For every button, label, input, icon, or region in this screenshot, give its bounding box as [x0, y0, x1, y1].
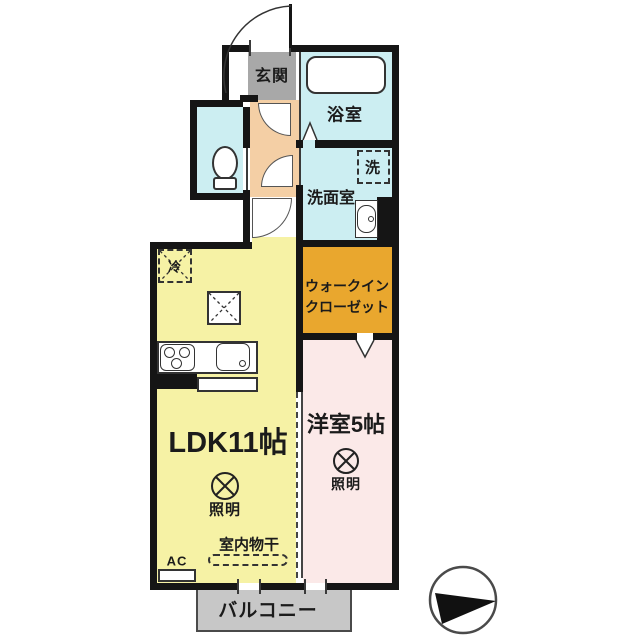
wall-hall-left-upper	[243, 107, 250, 148]
wall-central	[296, 185, 303, 392]
toilet-bowl	[212, 146, 238, 180]
window-tick-1	[237, 579, 239, 594]
wall-wic-bottom-stub	[373, 333, 392, 340]
partition-sliding-door	[296, 392, 303, 578]
vanity-faucet	[368, 216, 374, 222]
counter-return	[197, 377, 258, 392]
hall-bath-line	[299, 52, 301, 140]
kitchen-faucet	[239, 360, 246, 367]
window-tick-2	[259, 579, 261, 594]
counter-box	[207, 291, 241, 325]
washer-side-block	[377, 197, 392, 240]
entrance-door-leaf	[289, 4, 292, 48]
western-room-label: 洋室5帖	[307, 407, 385, 439]
bathtub	[306, 56, 386, 94]
bathroom-label: 浴室	[327, 101, 363, 126]
window-tick-4	[325, 579, 327, 594]
wall-toilet-left	[190, 100, 197, 200]
ac-unit	[158, 569, 196, 582]
western-room-floor	[303, 340, 392, 583]
entrance-tick-left	[249, 40, 251, 56]
ldk-door-swing	[252, 198, 292, 238]
refrigerator-label: 冷	[168, 257, 182, 276]
wall-ldk-top	[150, 242, 252, 249]
wall-ldk-left	[150, 242, 157, 590]
kitchen-wall-stub	[150, 374, 197, 389]
floor-plan: 玄関 浴室 洗 洗面室 ウォークイン クローゼット 冷 LDK11帖 照明 室内…	[0, 0, 640, 640]
wall-toilet-bottom	[190, 193, 250, 200]
wic-label: ウォークイン クローゼット	[305, 276, 389, 318]
stove-burner-3	[171, 358, 182, 369]
wall-genkan-hall-stub	[240, 95, 258, 102]
wall-wic-bottom	[296, 333, 357, 340]
bath-door-opening	[303, 140, 315, 148]
kitchen-sink	[216, 343, 250, 371]
western-window-gap	[306, 583, 325, 590]
north-arrow-icon	[430, 567, 496, 633]
indoor-drying-rail	[208, 554, 288, 566]
toilet-doorway-line	[246, 148, 248, 190]
wall-washroom-bottom	[296, 240, 399, 247]
ldk-label: LDK11帖	[168, 419, 287, 461]
wall-toilet-top	[190, 100, 243, 107]
stove-burner-1	[164, 347, 175, 358]
ac-label: AC	[167, 554, 188, 569]
washer-label: 洗	[365, 157, 381, 178]
washroom-label: 洗面室	[307, 184, 355, 208]
ldk-light-label: 照明	[209, 499, 241, 520]
stove-burner-2	[179, 347, 190, 358]
entrance-opening	[251, 45, 289, 52]
toilet-base	[213, 177, 237, 190]
wic-label-line2: クローゼット	[305, 297, 389, 318]
wall-hall-left-lower	[243, 190, 250, 249]
genkan-label: 玄関	[255, 62, 289, 86]
ldk-entry-floor	[252, 237, 296, 251]
ldk-window-gap	[239, 583, 259, 590]
western-light-label: 照明	[331, 474, 361, 494]
wic-label-line1: ウォークイン	[305, 276, 389, 297]
drying-label: 室内物干	[219, 534, 279, 555]
window-tick-3	[304, 579, 306, 594]
wall-bottom	[150, 583, 399, 590]
balcony-label: バルコニー	[218, 596, 318, 623]
wall-genkan-left	[222, 45, 229, 102]
washroom-doorway-line	[299, 148, 301, 185]
wall-outer-right	[392, 45, 399, 590]
